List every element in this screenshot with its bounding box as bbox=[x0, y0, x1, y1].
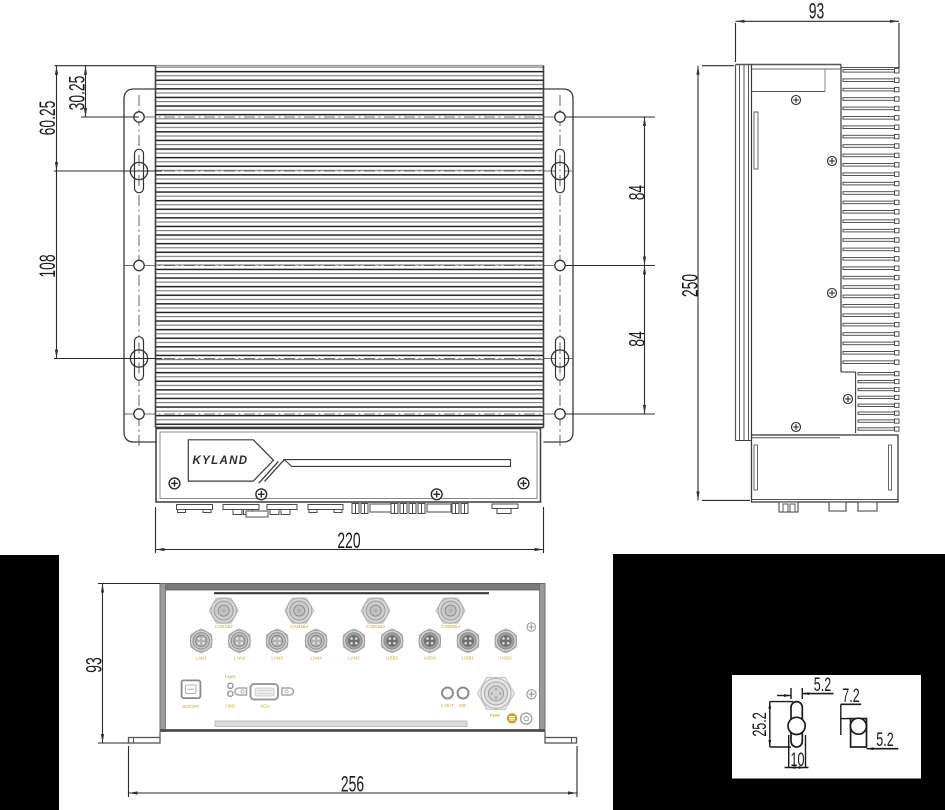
svg-text:93: 93 bbox=[81, 657, 106, 672]
svg-text:LAN1: LAN1 bbox=[195, 656, 207, 661]
svg-text:HDD: HDD bbox=[225, 703, 236, 708]
svg-text:USB2: USB2 bbox=[500, 656, 512, 661]
svg-text:CAN1&2: CAN1&2 bbox=[215, 624, 233, 629]
svg-text:10: 10 bbox=[791, 749, 805, 770]
svg-text:108: 108 bbox=[35, 254, 60, 277]
svg-text:LAN5: LAN5 bbox=[348, 656, 360, 661]
svg-text:PWR: PWR bbox=[225, 674, 236, 679]
svg-text:ON/OFF: ON/OFF bbox=[182, 704, 200, 709]
svg-text:93: 93 bbox=[809, 0, 824, 23]
svg-text:USB3: USB3 bbox=[386, 656, 398, 661]
svg-text:84: 84 bbox=[624, 185, 649, 200]
svg-text:VGA: VGA bbox=[260, 703, 271, 708]
svg-text:COM3&4: COM3&4 bbox=[441, 624, 460, 629]
svg-text:LAN2: LAN2 bbox=[234, 656, 246, 661]
svg-text:CAN3&4: CAN3&4 bbox=[290, 624, 308, 629]
svg-text:L-OUT: L-OUT bbox=[441, 703, 454, 708]
svg-text:LAN4: LAN4 bbox=[310, 656, 322, 661]
svg-text:MIC: MIC bbox=[459, 703, 467, 708]
svg-text:USB4: USB4 bbox=[424, 656, 436, 661]
svg-text:25.2: 25.2 bbox=[749, 712, 770, 736]
svg-text:250: 250 bbox=[677, 274, 702, 297]
svg-text:256: 256 bbox=[341, 771, 364, 796]
svg-text:USB1: USB1 bbox=[462, 656, 474, 661]
svg-text:30.25: 30.25 bbox=[64, 76, 89, 111]
svg-text:LAN3: LAN3 bbox=[271, 656, 283, 661]
svg-text:60.25: 60.25 bbox=[35, 101, 60, 136]
svg-text:7.2: 7.2 bbox=[842, 685, 859, 706]
svg-text:84: 84 bbox=[624, 331, 649, 346]
svg-text:220: 220 bbox=[337, 528, 360, 553]
svg-text:5.2: 5.2 bbox=[814, 674, 831, 695]
svg-text:PWR: PWR bbox=[490, 713, 501, 718]
svg-text:5.2: 5.2 bbox=[876, 729, 893, 750]
svg-text:COM1&2: COM1&2 bbox=[366, 624, 385, 629]
